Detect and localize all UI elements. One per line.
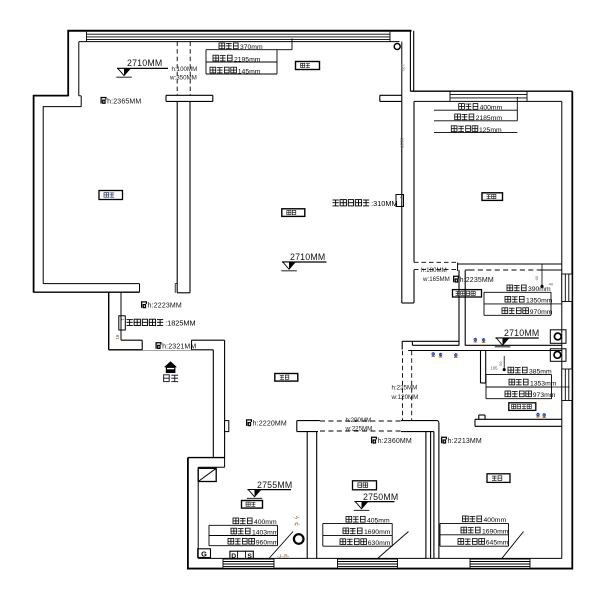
svg-text:h:2360MM: h:2360MM (378, 438, 412, 445)
svg-text:145mm: 145mm (238, 68, 261, 75)
svg-text:960mm: 960mm (256, 540, 279, 547)
svg-text:2710MM: 2710MM (290, 252, 325, 262)
svg-text:w:350MM: w:350MM (169, 74, 197, 81)
svg-text:h:225MM: h:225MM (392, 385, 418, 392)
svg-text:2130: 2130 (400, 138, 405, 149)
svg-text:2195mm: 2195mm (234, 56, 261, 63)
svg-text:18: 18 (115, 334, 120, 339)
svg-text:h:2365MM: h:2365MM (107, 98, 141, 105)
svg-text:h:2235MM: h:2235MM (460, 277, 494, 284)
svg-text:h:100MM: h:100MM (172, 66, 198, 73)
svg-text:400mm: 400mm (480, 105, 503, 112)
svg-text:385mm: 385mm (529, 368, 552, 375)
svg-text:390mm: 390mm (528, 286, 551, 293)
svg-text:2750MM: 2750MM (363, 492, 398, 502)
svg-text:G: G (201, 549, 207, 558)
svg-text:-J-: -J- (294, 515, 300, 521)
svg-text:195: 195 (491, 365, 499, 370)
svg-text:h:180MM: h:180MM (421, 267, 447, 274)
svg-text:400mm: 400mm (254, 519, 277, 526)
svg-text:630mm: 630mm (368, 540, 391, 547)
svg-text:2710MM: 2710MM (127, 58, 162, 68)
svg-text:1690mm: 1690mm (482, 528, 509, 535)
svg-text:970mm: 970mm (530, 309, 553, 316)
svg-text:1350mm: 1350mm (526, 298, 553, 305)
svg-text:40: 40 (534, 275, 539, 280)
svg-text:h:2220MM: h:2220MM (253, 421, 287, 428)
svg-text:645mm: 645mm (486, 540, 509, 547)
svg-text:h:290MM: h:290MM (346, 417, 372, 424)
svg-text:2185mm: 2185mm (476, 115, 503, 122)
svg-text:-R-: -R- (294, 522, 301, 528)
svg-text:405mm: 405mm (367, 518, 390, 525)
svg-text:2755MM: 2755MM (257, 480, 292, 490)
svg-text:w:165MM: w:165MM (422, 276, 450, 283)
svg-text:400mm: 400mm (483, 517, 506, 524)
svg-text:370mm: 370mm (240, 44, 263, 51)
svg-text:2710MM: 2710MM (504, 328, 539, 338)
svg-text:1403mm: 1403mm (252, 529, 279, 536)
svg-text:125mm: 125mm (479, 127, 502, 134)
svg-text:w:120MM: w:120MM (391, 394, 419, 401)
svg-text:h:2223MM: h:2223MM (148, 303, 182, 310)
svg-text:973mm: 973mm (533, 392, 556, 399)
svg-text:h:2213MM: h:2213MM (448, 438, 482, 445)
svg-text:120: 120 (401, 64, 406, 72)
svg-text:1690mm: 1690mm (364, 529, 391, 536)
svg-text:50: 50 (498, 361, 503, 366)
svg-text:1353mm: 1353mm (530, 380, 557, 387)
svg-text::1825MM: :1825MM (165, 319, 196, 328)
svg-text:w:225MM: w:225MM (345, 426, 373, 433)
svg-text::310MM: :310MM (371, 199, 397, 208)
